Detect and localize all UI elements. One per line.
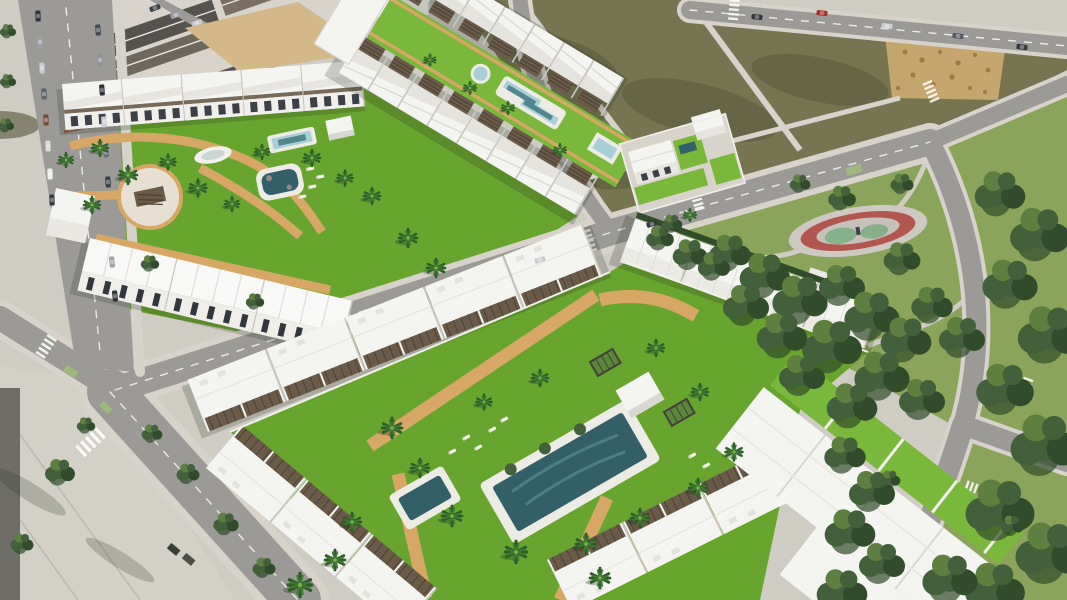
aerial-photo — [0, 0, 1067, 600]
aerial-render-figure — [0, 0, 1067, 600]
